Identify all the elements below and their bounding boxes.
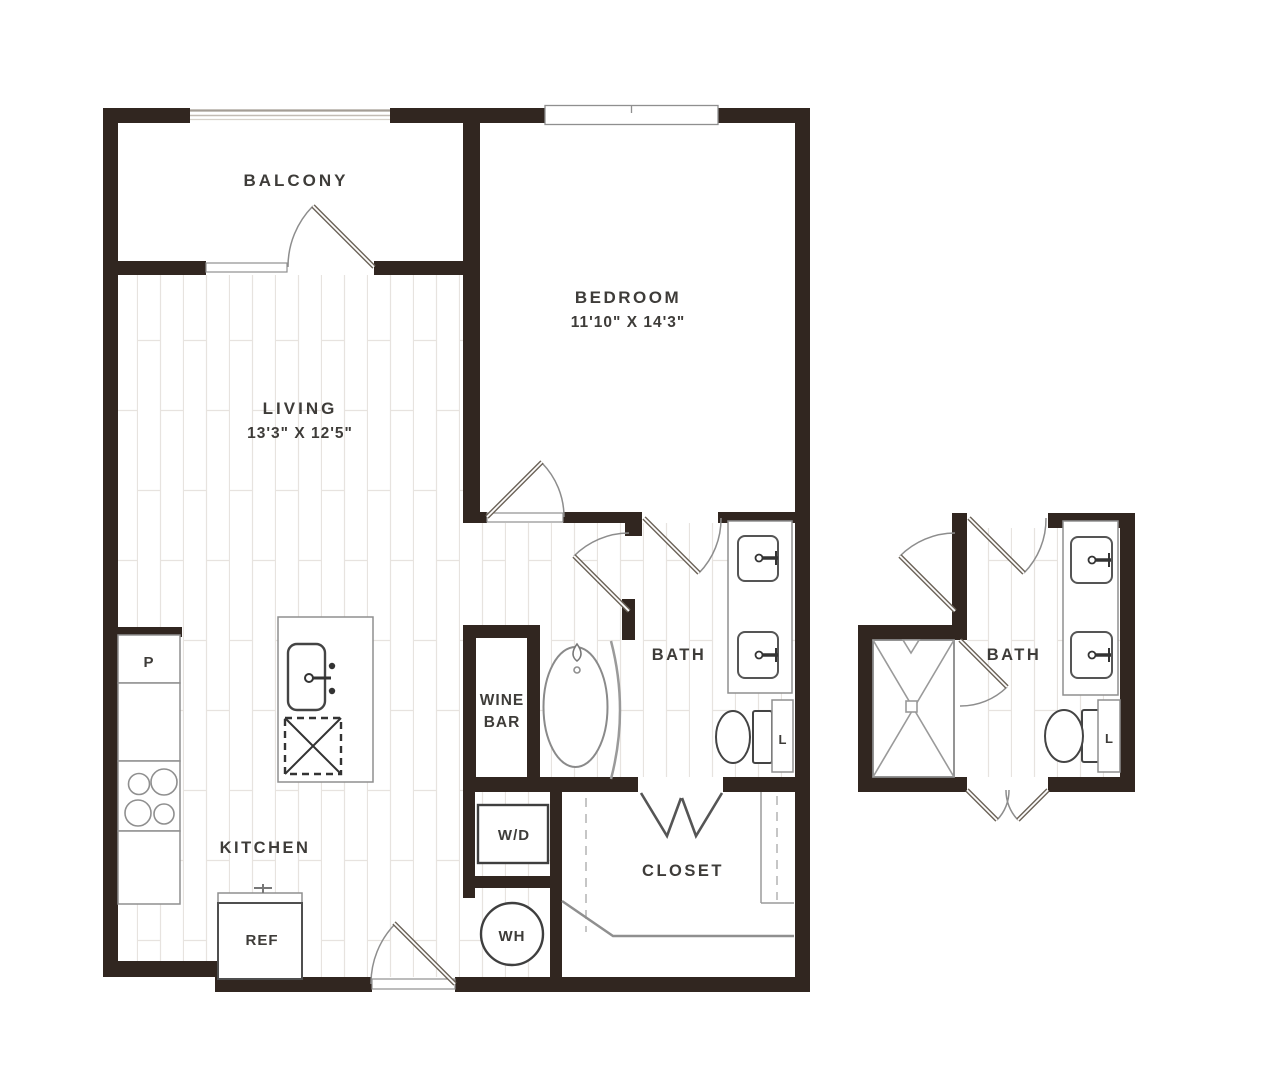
toilet-tank <box>753 711 772 763</box>
faucet-icon <box>756 555 763 562</box>
linen-label: L <box>779 732 787 747</box>
island-faucet-icon <box>329 688 335 694</box>
toilet-bowl <box>1045 710 1083 762</box>
island-faucet-icon <box>329 663 335 669</box>
washer-dryer-label: W/D <box>498 827 530 844</box>
wine-bar-label: BAR <box>484 714 521 731</box>
balcony-door-sill <box>206 263 287 272</box>
refrigerator-label: REF <box>246 932 279 949</box>
bedroom-dims: 11'10" X 14'3" <box>571 314 686 331</box>
linen-detail-label: L <box>1105 731 1113 746</box>
door-arc <box>900 533 955 556</box>
kitchen-label: KITCHEN <box>220 839 311 857</box>
floor-plan-page: BALCONY BEDROOM 11'10" X 14'3" LIVING 13… <box>0 0 1266 1066</box>
closet-label: CLOSET <box>642 862 724 880</box>
entry-floor <box>463 898 475 977</box>
water-heater-label: WH <box>499 928 526 945</box>
kitchen-counter <box>118 831 180 904</box>
bathtub <box>544 647 608 767</box>
toilet-bowl <box>716 711 750 763</box>
door-arc <box>542 463 564 517</box>
counter-sink-band <box>218 893 302 903</box>
door-arc <box>997 790 1009 820</box>
faucet-icon <box>1089 557 1096 564</box>
balcony-label: BALCONY <box>243 171 348 190</box>
living-dims: 13'3" X 12'5" <box>247 425 353 442</box>
hall-floor <box>463 523 634 625</box>
shower-drain-icon <box>906 701 917 712</box>
door-arc <box>288 206 313 267</box>
bifold-door <box>682 793 722 836</box>
bifold-door <box>641 793 681 836</box>
wine-bar-label: WINE <box>480 692 524 709</box>
faucet-icon <box>756 652 763 659</box>
bedroom-label: BEDROOM <box>575 288 681 307</box>
pantry-label: P <box>143 654 154 671</box>
kitchen-counter <box>118 683 180 761</box>
wood-floor-areas <box>118 275 1120 977</box>
door-arc <box>1006 790 1018 820</box>
bath-label: BATH <box>652 646 707 664</box>
floor-plan: BALCONY BEDROOM 11'10" X 14'3" LIVING 13… <box>0 0 1266 1066</box>
living-label: LIVING <box>263 399 338 418</box>
faucet-icon <box>1089 652 1096 659</box>
bath-detail-label: BATH <box>987 646 1042 664</box>
bedroom-door-sill <box>487 513 563 522</box>
closet-shelf <box>562 901 794 936</box>
toilet-tank <box>1082 710 1099 762</box>
entry-door-sill <box>372 979 455 989</box>
island-faucet-icon <box>305 674 313 682</box>
